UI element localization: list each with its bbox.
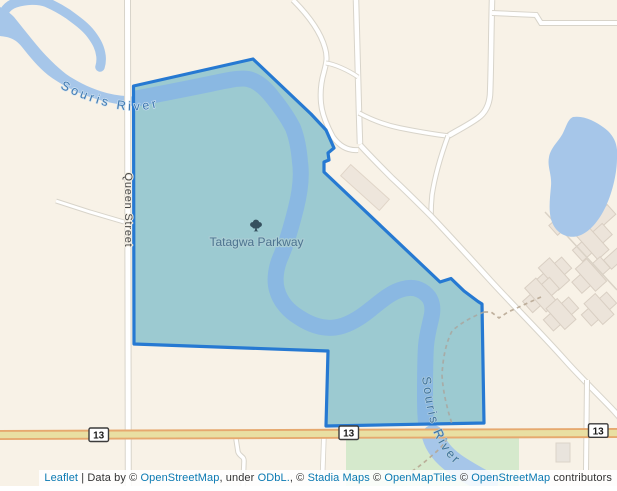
- svg-text:Queen Street: Queen Street: [122, 173, 134, 248]
- svg-text:Tatagwa Parkway: Tatagwa Parkway: [209, 235, 303, 249]
- svg-text:13: 13: [593, 427, 605, 438]
- svg-text:13: 13: [343, 429, 355, 440]
- svg-text:13: 13: [93, 431, 105, 442]
